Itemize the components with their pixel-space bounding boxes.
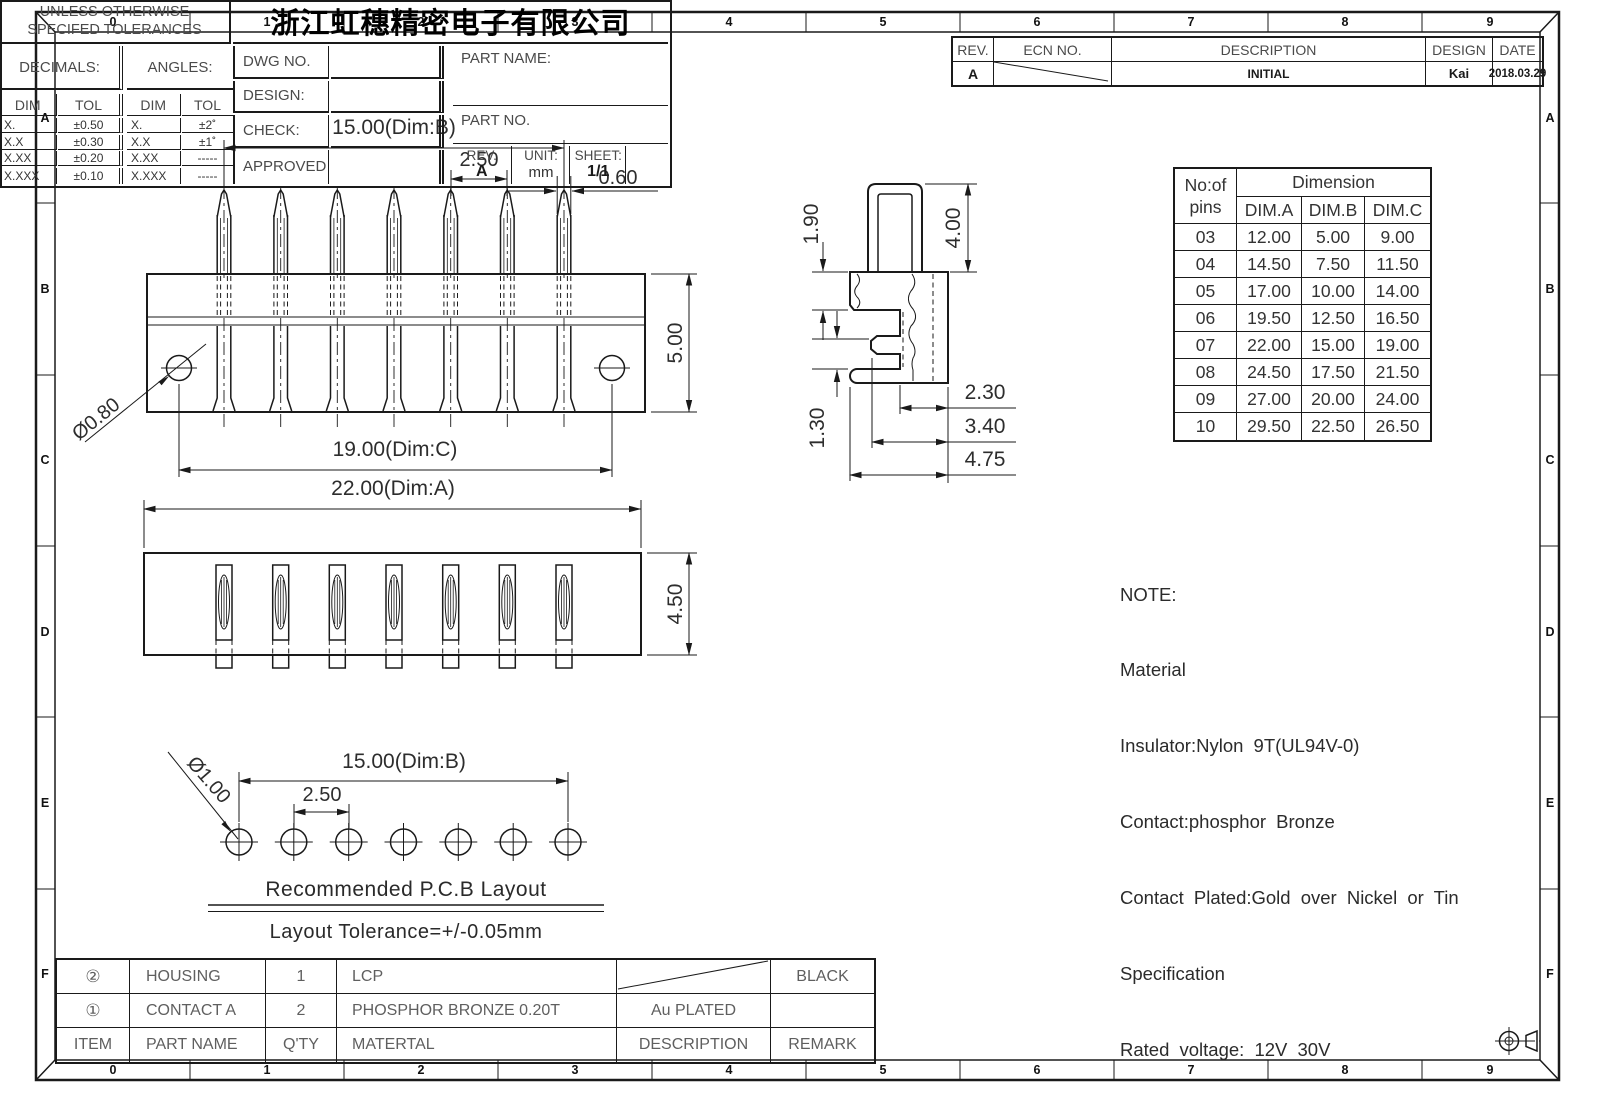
pcb-layout-tolerance: Layout Tolerance=+/-0.05mm: [270, 921, 543, 943]
dim-front-hole-span: 19.00(Dim:C): [333, 438, 458, 461]
side-view-dimensions: 1.90 4.00 1.30 2.30 3.40 4.75: [800, 184, 1016, 483]
table-cell: 07: [1175, 332, 1237, 359]
table-cell: 10: [1175, 413, 1237, 440]
dim-pcb-pitch: 2.50: [303, 784, 342, 806]
tolerance-value: ±1˚: [182, 135, 233, 150]
tolerance-value: -----: [182, 151, 233, 166]
tolerance-dim: X.XX: [0, 151, 57, 166]
design-value: [331, 81, 444, 114]
table-cell: 9.00: [1365, 224, 1430, 251]
table-cell: 03: [1175, 224, 1237, 251]
bom-qty: 1: [266, 960, 337, 994]
bom-header-material: MATERTAL: [337, 1028, 617, 1062]
tolerance-dim: X.XX: [127, 151, 181, 166]
bom-item-badge: ①: [57, 994, 130, 1028]
decimals-label: DECIMALS:: [0, 46, 123, 90]
ecn-header: ECN NO.: [994, 38, 1112, 62]
grid-col-label: 8: [1342, 15, 1349, 29]
tolerance-dim: X.: [0, 118, 57, 133]
table-cell: 22.50: [1302, 413, 1365, 440]
grid-col-label: 4: [726, 15, 733, 29]
pcb-layout-view: Ø1.00 15.00(Dim:B) 2.50 Recommended P.C.…: [168, 750, 604, 943]
dwg-no-label: DWG NO.: [233, 46, 329, 79]
table-cell: 20.00: [1302, 386, 1365, 413]
dim-front-height: 5.00: [664, 323, 687, 364]
rev-value: A: [953, 62, 994, 85]
grid-row-label: C: [1545, 453, 1554, 467]
grid-row-label: E: [41, 796, 49, 810]
table-cell: 17.50: [1302, 359, 1365, 386]
dim-a-header: DIM.A: [1237, 197, 1302, 224]
bom-header-qty: Q'TY: [266, 1028, 337, 1062]
dimension-group-header: Dimension: [1237, 169, 1430, 197]
grid-row-label: D: [40, 625, 49, 639]
table-cell: 24.50: [1237, 359, 1302, 386]
bottom-view-dimensions: 22.00(Dim:A) 4.50: [144, 477, 697, 655]
side-view: [850, 184, 948, 383]
notes-block: NOTE: Material Insulator:Nylon 9T(UL94V-…: [1120, 531, 1560, 1100]
table-cell: 09: [1175, 386, 1237, 413]
dim-front-hole-dia: Ø0.80: [68, 394, 124, 445]
bottom-view: [144, 553, 641, 668]
table-cell: 04: [1175, 251, 1237, 278]
table-cell: 06: [1175, 305, 1237, 332]
grid-row-label: B: [40, 282, 49, 296]
revision-table: REV. ECN NO. DESCRIPTION DESIGN DATE A I…: [951, 36, 1544, 87]
pins-header-line1: No:of: [1185, 174, 1227, 196]
tolerance-dim: X.X: [127, 135, 181, 150]
note-line: NOTE:: [1120, 582, 1560, 607]
dim-side-d3: 4.75: [965, 448, 1006, 471]
bom-qty: 2: [266, 994, 337, 1028]
angles-label: ANGLES:: [127, 46, 233, 90]
dim-b-header: DIM.B: [1302, 197, 1365, 224]
drawing-sheet: 15.00(Dim:B) 2.50 0.60 5.00 19.00(Dim:C)…: [0, 0, 1605, 1100]
tolerance-value: -----: [182, 168, 233, 184]
grid-row-label: F: [41, 967, 49, 981]
grid-row-label: B: [1545, 282, 1554, 296]
table-cell: 16.50: [1365, 305, 1430, 332]
front-view: [147, 186, 645, 430]
table-cell: 11.50: [1365, 251, 1430, 278]
grid-col-label: 5: [880, 1063, 887, 1077]
bom-description: [617, 960, 771, 994]
note-line: Rated voltage: 12V 30V: [1120, 1037, 1560, 1062]
date-value: 2018.03.29: [1493, 62, 1542, 85]
note-line: Specification: [1120, 961, 1560, 986]
dim-side-latch: 4.00: [942, 208, 965, 249]
tolerance-dim: X.XXX: [0, 168, 57, 184]
bom-item-badge: ②: [57, 960, 130, 994]
pcb-layout-caption: Recommended P.C.B Layout: [265, 878, 546, 901]
tolerance-dim: X.X: [0, 135, 57, 150]
table-cell: 05: [1175, 278, 1237, 305]
tolerance-title-line2: SPECIFED TOLERANCES: [27, 21, 201, 39]
bom-header-item: ITEM: [57, 1028, 130, 1062]
pins-header-line2: pins: [1189, 196, 1221, 218]
description-header: DESCRIPTION: [1112, 38, 1426, 62]
company-name: 浙江虹穗精密电子有限公司: [233, 0, 668, 44]
pin-dimension-table: No:of pins Dimension DIM.A DIM.B DIM.C 0…: [1173, 167, 1432, 442]
bom-material: PHOSPHOR BRONZE 0.20T: [337, 994, 617, 1028]
tolerance-value: ±0.10: [58, 168, 123, 184]
table-cell: 10.00: [1302, 278, 1365, 305]
description-value: INITIAL: [1112, 62, 1426, 85]
part-no-label: PART NO.: [453, 108, 668, 145]
tolerance-value: ±2˚: [182, 118, 233, 133]
table-cell: 7.50: [1302, 251, 1365, 278]
grid-col-label: 6: [1034, 15, 1041, 29]
rev-label: REV.: [467, 148, 497, 163]
dim-side-d1: 2.30: [965, 381, 1006, 404]
table-cell: 08: [1175, 359, 1237, 386]
dim-bottom-depth: 4.50: [664, 584, 687, 625]
grid-col-label: 2: [418, 1063, 425, 1077]
bom-header-part-name: PART NA­ME: [130, 1028, 266, 1062]
table-cell: 14.00: [1365, 278, 1430, 305]
table-cell: 21.50: [1365, 359, 1430, 386]
bom-material: LCP: [337, 960, 617, 994]
check-label: CHECK:: [233, 115, 329, 148]
ecn-value: [994, 62, 1112, 85]
table-cell: 24.00: [1365, 386, 1430, 413]
projection-symbol-cell: [628, 146, 669, 185]
dim-bottom-overall: 22.00(Dim:A): [331, 477, 455, 500]
design-label: DESIGN:: [233, 81, 329, 114]
design-value: Kai: [1426, 62, 1493, 85]
dim-col-header: DIM: [127, 94, 181, 116]
rev-header: REV.: [953, 38, 994, 62]
bom-part-name: HOUSING: [130, 960, 266, 994]
table-cell: 5.00: [1302, 224, 1365, 251]
tolerance-value: ±0.50: [58, 118, 123, 133]
table-cell: 19.00: [1365, 332, 1430, 359]
sheet-value: 1/1: [587, 163, 609, 181]
bom-part-name: CONTACT A: [130, 994, 266, 1028]
approved-label: APPROVED: [233, 150, 329, 185]
tol-col-header: TOL: [182, 94, 233, 116]
bom-description: Au PLATED: [617, 994, 771, 1028]
bom-table: ② HOUSING 1 LCP BLACK ① CONTACT A 2 PHOS…: [55, 958, 876, 1064]
part-name-label: PART NAME:: [453, 46, 668, 106]
tol-col-header: TOL: [58, 94, 123, 116]
tolerance-dim: X.: [127, 118, 181, 133]
table-cell: 19.50: [1237, 305, 1302, 332]
rev-value: A: [476, 163, 488, 181]
tolerance-title-line1: UNLESS OTHERWISE: [40, 3, 190, 21]
grid-col-label: 0: [110, 1063, 117, 1077]
bom-remark: BLACK: [771, 960, 874, 994]
table-cell: 29.50: [1237, 413, 1302, 440]
grid-col-label: 1: [264, 1063, 271, 1077]
grid-col-label: 7: [1188, 15, 1195, 29]
dim-pcb-overall: 15.00(Dim:B): [342, 750, 466, 773]
check-value: [331, 115, 444, 148]
grid-col-label: 4: [726, 1063, 733, 1077]
dim-side-d2: 3.40: [965, 415, 1006, 438]
table-cell: 26.50: [1365, 413, 1430, 440]
dwg-no-value: [331, 46, 444, 79]
note-line: Contact:phosphor Bronze: [1120, 809, 1560, 834]
grid-col-label: 9: [1487, 15, 1494, 29]
dim-c-header: DIM.C: [1365, 197, 1430, 224]
table-cell: 12.00: [1237, 224, 1302, 251]
design-header: DESIGN: [1426, 38, 1493, 62]
date-header: DATE: [1493, 38, 1542, 62]
title-block: UNLESS OTHERWISE SPECIFED TOLERANCES 浙江虹…: [0, 0, 672, 188]
bom-remark: [771, 994, 874, 1028]
dim-side-upper: 1.90: [800, 204, 823, 245]
table-cell: 17.00: [1237, 278, 1302, 305]
bom-header-description: DESCRIPTION: [617, 1028, 771, 1062]
table-cell: 27.00: [1237, 386, 1302, 413]
dim-col-header: DIM: [0, 94, 57, 116]
table-cell: 12.50: [1302, 305, 1365, 332]
grid-col-label: 3: [572, 1063, 579, 1077]
sheet-label: SHEET:: [575, 148, 622, 163]
tolerance-value: ±0.20: [58, 151, 123, 166]
grid-row-label: A: [1545, 111, 1554, 125]
table-cell: 22.00: [1237, 332, 1302, 359]
grid-col-label: 5: [880, 15, 887, 29]
tolerance-dim: X.XXX: [127, 168, 181, 184]
approved-value: [331, 150, 444, 185]
note-line: Contact Plated:Gold over Nickel or Tin: [1120, 885, 1560, 910]
table-cell: 14.50: [1237, 251, 1302, 278]
table-cell: 15.00: [1302, 332, 1365, 359]
unit-value: mm: [529, 164, 554, 181]
bom-header-remark: REMARK: [771, 1028, 874, 1062]
tolerance-value: ±0.30: [58, 135, 123, 150]
note-line: Insulator:Nylon 9T(UL94V-0): [1120, 733, 1560, 758]
grid-col-label: 6: [1034, 1063, 1041, 1077]
note-line: Material: [1120, 657, 1560, 682]
dim-side-lower: 1.30: [806, 408, 829, 449]
unit-label: UNIT:: [524, 148, 558, 163]
grid-row-label: C: [40, 453, 49, 467]
